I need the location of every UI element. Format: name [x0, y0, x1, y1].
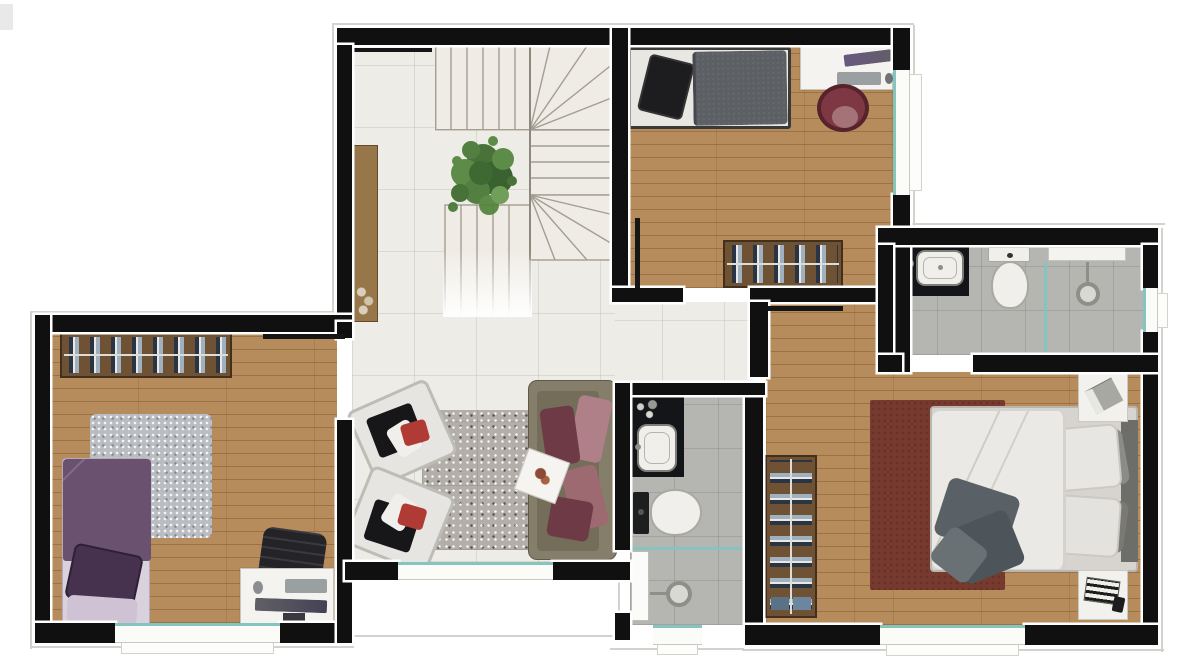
sink: [637, 424, 677, 472]
keyboard: [285, 579, 327, 593]
window-master: [880, 625, 1025, 645]
mouse: [885, 73, 893, 84]
wall-bath2-bottom-b: [973, 355, 1158, 372]
faucet: [635, 444, 641, 450]
window-bedroom2: [893, 70, 910, 195]
wall-bedroom2-right-b: [893, 195, 910, 372]
window-bedroom1: [115, 623, 280, 643]
window-bath2: [1143, 288, 1158, 332]
wall-bottom-right-a: [745, 625, 880, 645]
wall-hall-left: [337, 45, 352, 322]
window-sill: [910, 74, 922, 191]
wall-bath2-top: [878, 228, 1158, 245]
stair-railing: [354, 48, 432, 52]
window-sill: [657, 645, 698, 655]
window-sill: [886, 645, 1019, 656]
wall-master-door-stub: [750, 302, 768, 377]
wall-bath2-left: [878, 245, 893, 372]
wall-bath1-left-b: [615, 613, 630, 640]
toilet-bowl-bath2: [991, 261, 1029, 309]
pillow-black: [637, 53, 696, 120]
mouse: [253, 581, 263, 594]
wall-bedroom1-bottom-a: [35, 623, 115, 643]
shower-arm: [1086, 262, 1089, 284]
terrace-outline: [345, 580, 620, 637]
wall-bottom-right-b: [1025, 625, 1158, 645]
sink-basin: [644, 432, 670, 464]
flush-button: [1007, 253, 1013, 258]
scan-artifact: [0, 4, 13, 30]
folded-clothes: [771, 597, 789, 610]
outline-left-wing-side: [30, 311, 32, 649]
wall-bedroom2-right-a: [893, 28, 910, 70]
shower-head: [666, 581, 692, 607]
shower-head: [1076, 282, 1100, 306]
sideboard-decor: [356, 286, 374, 316]
shower-niche: [1048, 247, 1126, 261]
vanity-counter-bath1: [630, 395, 684, 477]
toilet-tank-bath1: [633, 492, 649, 534]
window-living: [398, 562, 553, 580]
desk-bedroom1: [240, 568, 334, 625]
outline-bath2-top: [873, 223, 1165, 225]
nightstand-bottom: [1078, 570, 1128, 620]
floor-hall-passage: [600, 302, 753, 383]
faucet: [938, 265, 943, 270]
window-sill: [1158, 293, 1168, 328]
toilet-bowl-bath1: [650, 489, 702, 536]
monitor: [843, 49, 892, 67]
side-table-decor: [529, 464, 556, 488]
wall-bedroom1-left: [35, 315, 50, 643]
counter-decor: [633, 398, 663, 420]
duvet-gray: [692, 50, 787, 126]
wall-bedroom1-top: [35, 315, 352, 332]
window-sill: [121, 643, 274, 654]
wall-bath1-top: [615, 383, 765, 395]
outline-hall-left: [332, 25, 334, 315]
wall-bedroom2-left: [612, 28, 628, 302]
double-bed: [930, 406, 1138, 572]
toilet-tank-bath2: [988, 247, 1030, 262]
outline-hall-top: [332, 23, 914, 25]
outline-top-left-wing: [30, 311, 354, 313]
door-leaf-master: [768, 306, 843, 311]
book: [1085, 377, 1124, 414]
rack-bar: [790, 459, 792, 614]
clothes-rack-bedroom1: [60, 332, 232, 378]
shower-glass-bath2: [1044, 262, 1047, 355]
wall-bath2-bottom-a: [878, 355, 902, 372]
outline-right-side: [1161, 228, 1163, 652]
door-leaf-bedroom2: [635, 218, 640, 288]
door-leaf-bath1: [631, 551, 649, 621]
window-bath1: [653, 625, 702, 645]
potted-plant: [433, 128, 533, 230]
sideboard: [352, 145, 378, 322]
door-leaf-bedroom1: [263, 334, 345, 339]
wall-master-left: [745, 383, 763, 645]
wall-right-a: [1143, 245, 1158, 288]
clothes-rack-bedroom2: [723, 240, 843, 288]
bed-bedroom2: [628, 47, 791, 129]
wall-right-b: [1143, 332, 1158, 645]
round-chair: [817, 84, 869, 132]
floor-plan: [0, 0, 1200, 672]
rack-bar: [727, 263, 839, 265]
wall-living-bottom-a: [345, 562, 398, 580]
folded-clothes: [793, 597, 811, 610]
shower-glass-bath1: [632, 547, 744, 550]
wall-bedroom2-bottom-a: [612, 288, 683, 302]
monitor-stand: [283, 613, 305, 622]
bed-bedroom1: [62, 458, 150, 628]
rack-bar: [64, 354, 228, 356]
wall-bedroom1-right: [337, 420, 352, 643]
round-chair-seat: [832, 106, 858, 128]
monitor: [255, 598, 327, 614]
clothes-rack-master: [765, 455, 817, 618]
phone: [1112, 596, 1126, 613]
wall-living-bottom-b: [553, 562, 630, 580]
nightstand-top: [1078, 372, 1128, 422]
sink: [916, 250, 964, 286]
flush-button: [638, 509, 644, 515]
wall-bedroom2-bottom-b: [750, 288, 877, 302]
wall-bath1-left-a: [615, 383, 630, 550]
